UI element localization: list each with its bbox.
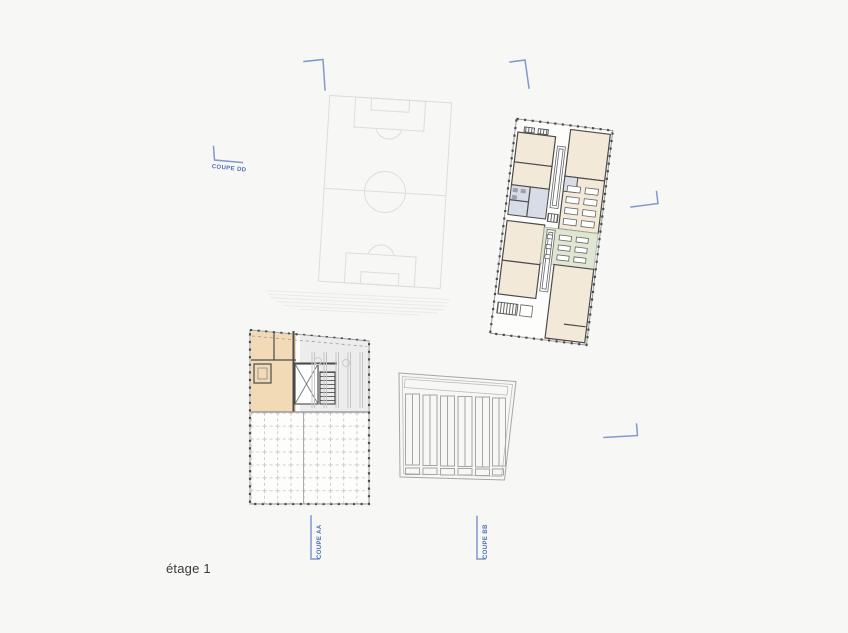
section-cut-icon-dd — [214, 147, 243, 163]
corner-mark-icon — [604, 424, 638, 438]
parking-stall-column — [441, 396, 455, 466]
library-building-plan — [250, 330, 369, 504]
drawing-sheet: COUPE DD COUPE AA COUPE BB étage 1 — [0, 0, 848, 633]
parking-top-row — [404, 379, 507, 395]
room — [565, 130, 610, 182]
section-label-bb: COUPE BB — [483, 524, 489, 559]
floor-title: étage 1 — [166, 561, 211, 576]
goal-area-top — [371, 98, 410, 112]
room — [502, 220, 545, 264]
section-label-aa: COUPE AA — [317, 524, 323, 559]
soccer-field — [318, 95, 451, 288]
parking-plan — [399, 373, 516, 480]
floor-plan-drawing — [0, 0, 848, 633]
room — [498, 260, 540, 298]
classroom-building-plan — [490, 119, 613, 345]
parking-stall-column — [423, 395, 437, 466]
parking-stall-columns — [406, 394, 506, 467]
room — [514, 132, 555, 166]
corner-mark-icon — [304, 60, 325, 91]
corner-mark-icon — [510, 60, 529, 88]
parking-stall-column — [476, 397, 490, 467]
penalty-area-top — [354, 97, 426, 131]
goal-area-bottom — [360, 272, 399, 286]
room — [545, 264, 594, 342]
halfway-line — [324, 188, 446, 195]
bleacher-lines — [266, 291, 451, 317]
penalty-area-bottom — [344, 253, 416, 287]
parking-stall-column — [458, 397, 472, 467]
parking-stall-column — [493, 398, 506, 466]
corner-mark-icon — [631, 192, 658, 208]
structural-grid — [251, 413, 368, 504]
staircase — [320, 372, 335, 404]
parking-stall-column — [406, 394, 420, 465]
